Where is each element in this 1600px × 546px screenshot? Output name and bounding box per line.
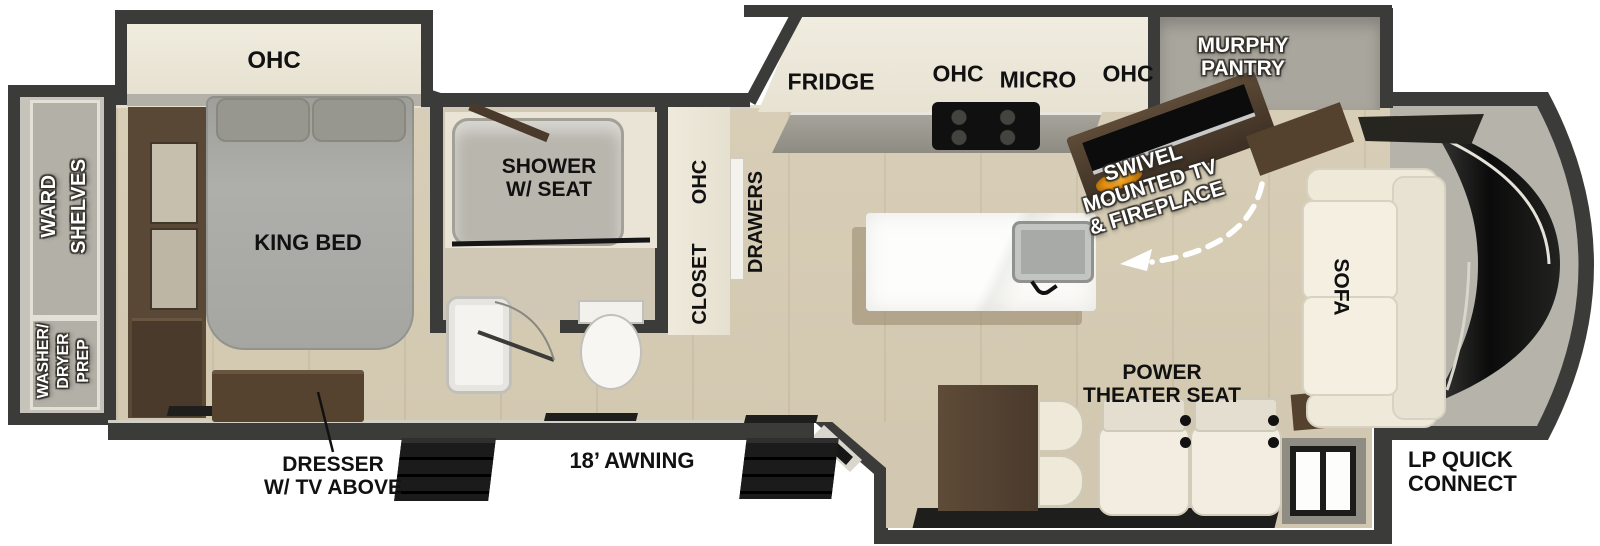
bedroom-ohc-label: OHC xyxy=(247,48,300,74)
kitchen-ohc-right-label: OHC xyxy=(1102,61,1153,86)
drawers-label: DRAWERS xyxy=(745,171,767,273)
floorplan-canvas: WARD SHELVES WASHER/ DRYER PREP OHC KING… xyxy=(0,0,1600,546)
sofa-label: SOFA xyxy=(1329,258,1352,315)
closet-label: CLOSET xyxy=(689,243,711,324)
dresser-leader-line xyxy=(318,392,333,452)
shower-seat-label: SHOWER W/ SEAT xyxy=(502,155,597,201)
closet-ohc-label: OHC xyxy=(689,160,711,204)
awning-label: 18’ AWNING xyxy=(569,449,694,473)
lp-quick-connect-label: LP QUICK CONNECT xyxy=(1408,448,1517,496)
bathroom-door-arc xyxy=(495,302,554,360)
washer-dryer-prep-label: WASHER/ DRYER PREP xyxy=(34,324,94,399)
dresser-tv-label: DRESSER W/ TV ABOVE xyxy=(264,453,402,499)
bathroom-door-leaf xyxy=(478,332,554,360)
bedroom-door-leaf xyxy=(470,106,548,138)
ward-shelves-label: WARD SHELVES xyxy=(34,158,94,253)
micro-label: MICRO xyxy=(1000,67,1077,92)
swivel-arrow-head xyxy=(1120,249,1152,271)
murphy-pantry-label: MURPHY PANTRY xyxy=(1197,34,1288,80)
fridge-label: FRIDGE xyxy=(788,69,875,94)
shower-glass xyxy=(452,240,650,244)
bedroom-slide-right-edge xyxy=(428,94,452,102)
kitchen-ohc-left-label: OHC xyxy=(932,61,983,86)
king-bed-label: KING BED xyxy=(254,231,362,255)
power-theater-seat-label: POWER THEATER SEAT xyxy=(1083,361,1241,407)
